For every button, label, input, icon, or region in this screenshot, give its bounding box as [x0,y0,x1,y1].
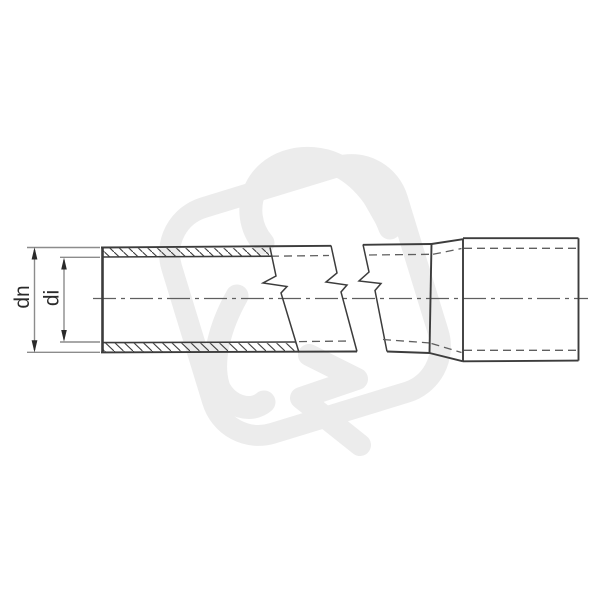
pipe-bottom-outline-left [101,352,357,353]
hidden-line-bottom-right [383,340,430,344]
di-arrow-bottom [61,330,67,342]
di-arrow-top [61,258,67,270]
watermark-logo [158,153,453,448]
socket-bottom [463,361,579,362]
pipe-wall-hatch-top [103,248,269,256]
section-break-line [263,248,299,353]
pipe-top-outline-right [363,244,432,245]
cone-top [432,239,464,244]
di-label: di [41,290,64,306]
drawing-canvas: dn di [0,0,600,600]
cone-hidden-top [433,249,462,255]
socket [463,238,579,361]
pipe-diagram: dn di [0,0,600,600]
pipe-wall-inner-bottom [103,342,296,343]
pipe-wall-hatch-bottom [103,343,296,351]
pipe-top-outline-left [101,246,331,248]
dn-arrow-bottom [32,340,38,352]
dn-arrow-top [32,247,38,259]
di-dimension: di [41,257,101,342]
pipe-wall-inner-top [103,256,272,257]
hidden-line-top-mid [271,256,329,257]
hidden-line-top-right [369,254,432,255]
dn-label: dn [11,285,34,308]
hidden-line-bottom-mid [299,341,350,342]
pipe-bottom-outline-right [387,352,430,354]
